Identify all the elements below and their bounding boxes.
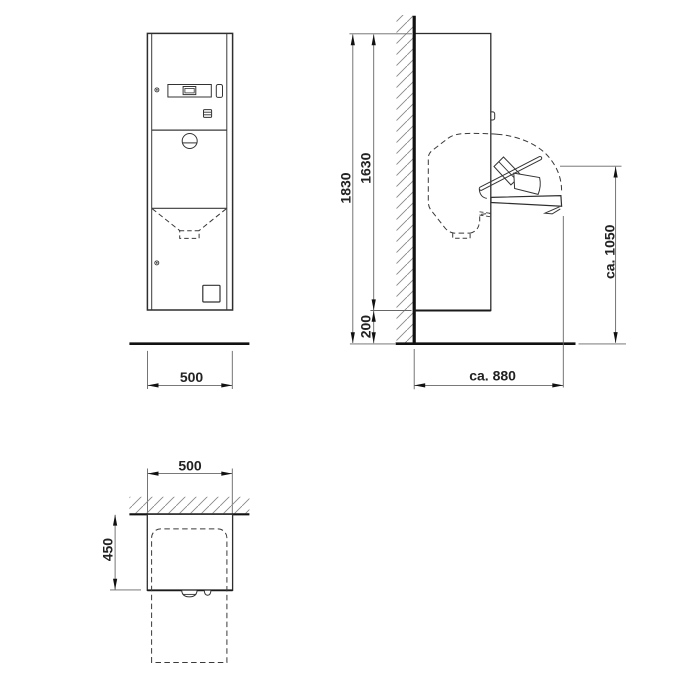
svg-text:1630: 1630 bbox=[357, 152, 373, 183]
svg-text:1830: 1830 bbox=[338, 172, 354, 203]
svg-text:ca. 1050: ca. 1050 bbox=[601, 224, 617, 279]
svg-text:500: 500 bbox=[180, 369, 204, 385]
svg-text:450: 450 bbox=[100, 538, 116, 562]
svg-text:500: 500 bbox=[178, 457, 202, 473]
svg-text:ca. 880: ca. 880 bbox=[469, 367, 516, 383]
svg-text:200: 200 bbox=[357, 315, 373, 339]
